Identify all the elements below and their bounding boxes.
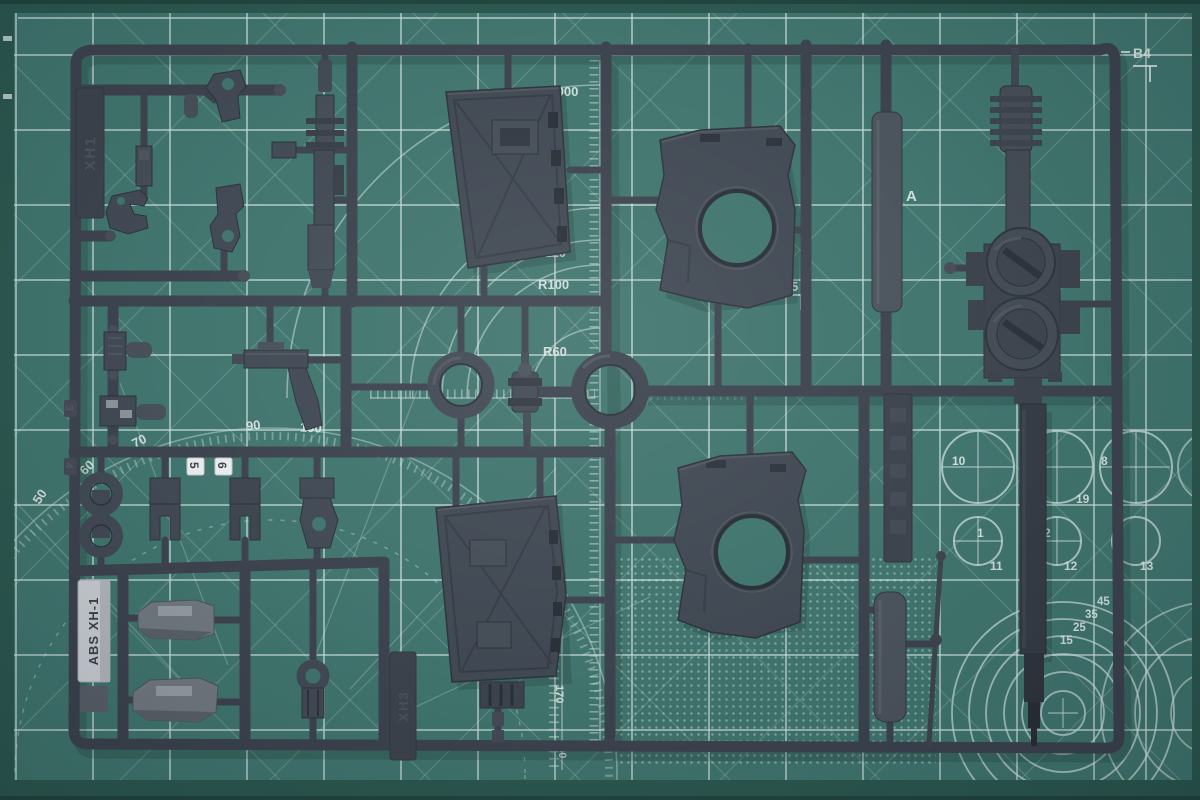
part-row-middle-left — [84, 477, 338, 553]
material-tag: ABS XH-1 — [78, 580, 110, 712]
runner-tag-bottom-center-text: XH3 — [396, 690, 411, 721]
part-armor-bracket-bottom — [674, 452, 806, 638]
gate-number-4: 4 — [63, 463, 74, 469]
part-small-rifle — [306, 60, 344, 288]
gate-number-3: 3 — [63, 405, 74, 411]
part-valve-joint — [508, 352, 542, 434]
part-gray-piece-2 — [133, 678, 218, 722]
part-thin-rod — [925, 551, 946, 748]
part-ring — [434, 358, 488, 412]
photo-model-kit-sprue-on-cutting-mat: B4 A 5 R1000 150 120 R100 R60 50 60 70 9… — [0, 0, 1200, 800]
part-stick — [872, 112, 902, 312]
material-tag-text: ABS XH-1 — [86, 597, 101, 666]
gate-number-5: 5 — [187, 462, 201, 469]
runner-tag-top-left: XH1 — [76, 88, 104, 218]
part-ring-cylinder — [301, 664, 325, 718]
part-cluster-top-left — [106, 70, 296, 252]
part-gray-piece-1 — [138, 600, 214, 640]
part-cylinder — [874, 592, 906, 722]
part-armor-bracket-top — [656, 126, 795, 308]
part-panel-plate-top — [446, 86, 570, 268]
runner-tag-bottom-center: XH3 — [390, 652, 416, 760]
part-panel-plate-bottom — [436, 496, 566, 742]
sprue-runner: 5 6 3 4 — [0, 0, 1200, 800]
maker-plate-tag — [884, 394, 912, 562]
gate-number-6: 6 — [215, 462, 229, 469]
part-pistol — [232, 342, 322, 430]
runner-tag-top-left-text: XH1 — [82, 135, 99, 170]
